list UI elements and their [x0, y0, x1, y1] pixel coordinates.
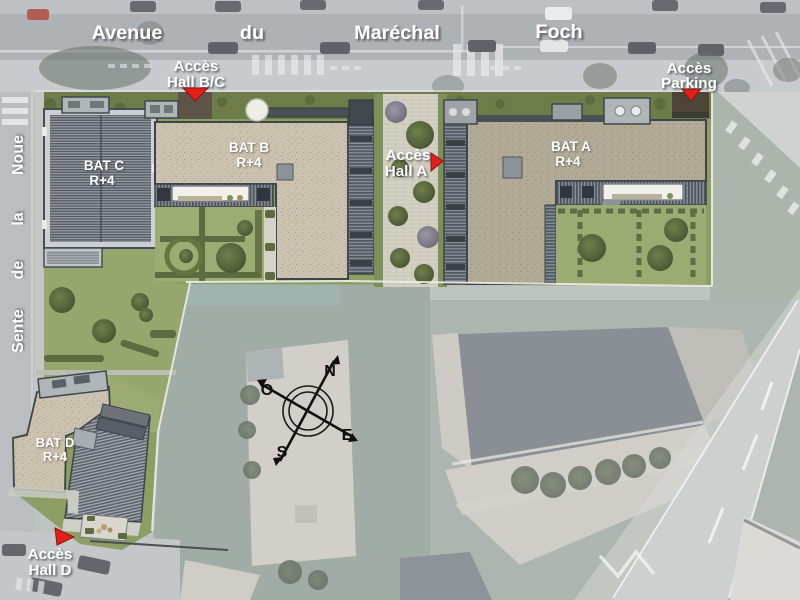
svg-text:BAT C: BAT C — [84, 158, 124, 173]
svg-text:la: la — [10, 212, 27, 225]
svg-text:BAT A: BAT A — [551, 139, 591, 154]
svg-text:BAT D: BAT D — [36, 435, 75, 450]
svg-text:du: du — [240, 22, 264, 44]
svg-text:Noue: Noue — [10, 135, 27, 175]
svg-text:Accès: Accès — [28, 546, 73, 563]
svg-text:R+4: R+4 — [236, 155, 262, 170]
svg-text:Accès: Accès — [386, 147, 431, 164]
svg-text:S: S — [277, 444, 288, 461]
svg-text:N: N — [324, 363, 336, 380]
svg-text:Hall D: Hall D — [28, 562, 71, 579]
svg-text:Avenue: Avenue — [92, 22, 163, 44]
svg-text:de: de — [10, 261, 27, 280]
svg-text:E: E — [342, 427, 353, 444]
svg-text:Maréchal: Maréchal — [354, 22, 440, 44]
svg-text:Foch: Foch — [535, 21, 582, 43]
svg-text:R+4: R+4 — [555, 154, 581, 169]
svg-text:Accès: Accès — [174, 58, 219, 75]
svg-text:Sente: Sente — [10, 309, 27, 353]
svg-text:R+4: R+4 — [43, 449, 68, 464]
svg-text:R+4: R+4 — [89, 173, 115, 188]
svg-text:O: O — [261, 382, 273, 399]
svg-text:Hall A: Hall A — [385, 163, 428, 180]
svg-text:BAT B: BAT B — [229, 140, 269, 155]
